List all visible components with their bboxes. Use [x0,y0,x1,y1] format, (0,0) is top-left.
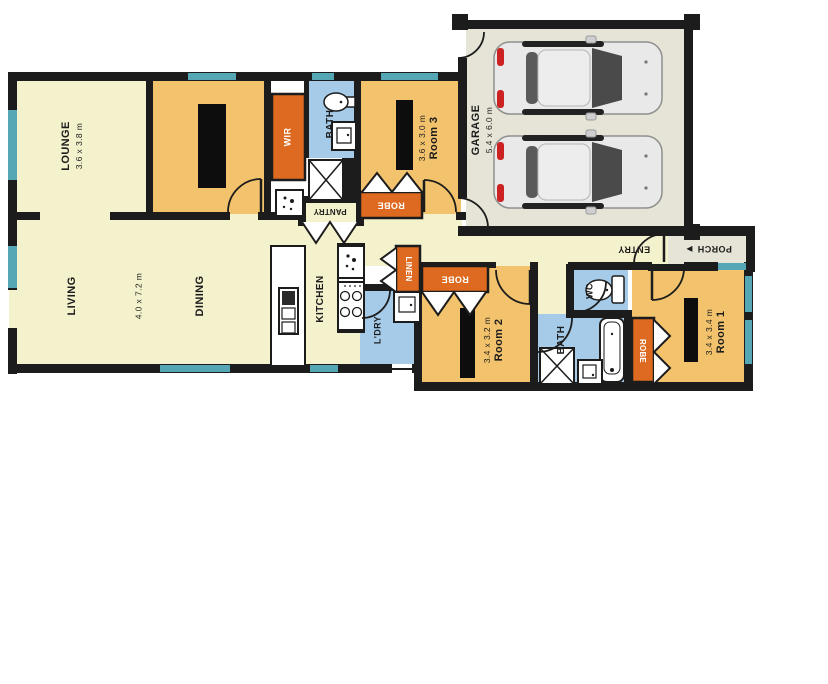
window [745,320,752,364]
dining-label: DINING [194,276,208,317]
window [8,246,17,288]
laundry-tub-icon [394,292,420,322]
window [160,365,230,372]
wc-label: WC [584,283,595,299]
entry-direction-arrow-icon: ► [684,243,694,254]
kitchen-sink-icon [279,288,298,334]
lounge-dims: 3.6 x 3.8 m [74,121,85,170]
window [718,263,746,270]
robe-room1-label: ROBE [637,339,647,363]
bed-icon [198,104,226,188]
entry-label: ENTRY [618,243,650,254]
lounge-name: LOUNGE [60,121,74,170]
car-icon [494,130,662,214]
lounge-label: LOUNGE 3.6 x 3.8 m [60,121,84,170]
laundry-label: L'DRY [372,316,383,344]
room3-label: 3.6 x 3.0 m Room 3 [417,115,441,161]
window [381,73,438,80]
hall-cabinet-icon [276,190,303,216]
living-label: LIVING [66,276,80,315]
car-icon [494,36,662,120]
garage-label: GARAGE 5.4 x 6.0 m [470,105,494,156]
room2-label: 3.4 x 3.2 m Room 2 [482,317,506,363]
robe-room2-label: ROBE [441,273,469,284]
kitchen-label: KITCHEN [315,275,328,322]
bed-icon [684,298,698,362]
wir-label: WIR [282,128,293,147]
window [8,110,17,180]
room1-label: 3.4 x 3.4 m Room 1 [704,309,728,355]
window [188,73,236,80]
window [312,73,334,80]
main-bath-label: BATH [556,326,569,355]
pantry-label: PANTRY [313,206,346,216]
living-dims-label: 4.0 x 7.2 m [134,273,145,319]
basin-icon [324,93,348,111]
cooktop-icon [338,282,364,330]
window [745,276,752,312]
bed-icon [396,100,413,170]
bed-icon [460,308,475,378]
linen-label: LINEN [403,257,413,282]
porch-label: PORCH► [684,240,732,260]
window [310,365,338,372]
floor-plan: LOUNGE 3.6 x 3.8 m LIVING 4.0 x 7.2 m DI… [0,0,828,684]
fridge-icon [338,246,364,278]
shower-icon [309,160,343,200]
robe-room3-label: ROBE [377,199,405,210]
ensuite-bath-label: BATH [325,110,338,139]
